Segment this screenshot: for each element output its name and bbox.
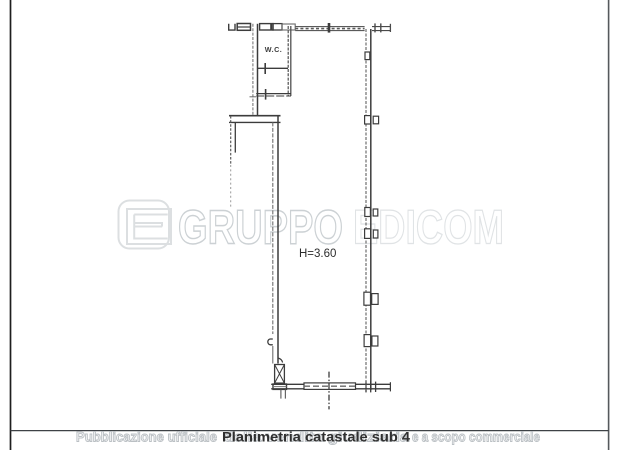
svg-text:Pubblicazione ufficiale: Pubblicazione ufficiale [76,430,217,445]
svg-text:Planimetria catastale sub 4: Planimetria catastale sub 4 [222,430,411,445]
svg-text:H=3.60: H=3.60 [299,248,336,260]
svg-text:W.C.: W.C. [265,45,283,54]
svg-text:e a scopo commerciale: e a scopo commerciale [412,430,540,445]
svg-text:GRUPPO: GRUPPO [178,202,343,255]
